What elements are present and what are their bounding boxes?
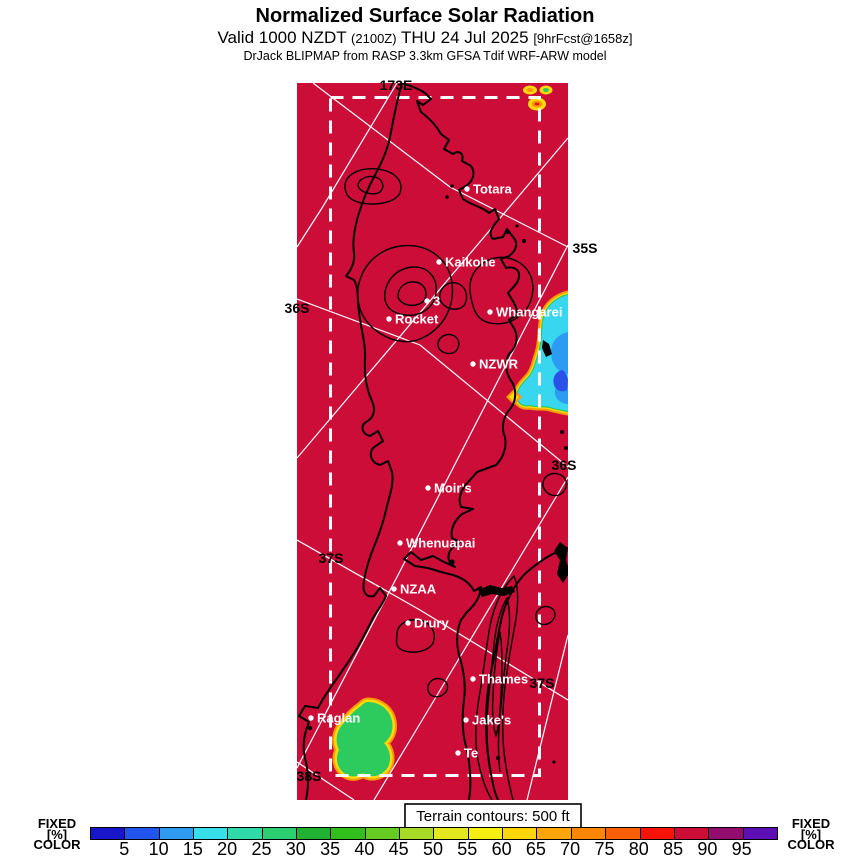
colorbar-tick-85: 85 [663,839,683,860]
colorbar-tick-25: 25 [251,839,271,860]
colorbar-tick-15: 15 [183,839,203,860]
colorbar-segment-19 [744,828,777,839]
station-label: Whenuapai [406,536,475,551]
colorbar-fixed-label-left: FIXED [%] COLOR [27,819,87,851]
colorbar-segment-1 [125,828,159,839]
colorbar-segment-10 [434,828,468,839]
colorbar-segment-0 [91,828,125,839]
colorbar-segment-7 [331,828,365,839]
solar-radiation-map: 173E35S36S36S37S37S38S TotaraKaikohe3Roc… [0,0,850,860]
graticule-label-36s: 36S [285,300,310,316]
graticule-label-38s: 38S [297,768,322,784]
colorbar-segment-8 [366,828,400,839]
station-label: Totara [473,182,513,197]
station-dot [470,676,475,681]
station-label: Te [464,746,478,761]
station-label: Raglan [317,711,360,726]
colorbar-tick-65: 65 [526,839,546,860]
colorbar-segment-6 [297,828,331,839]
station-dot [455,750,460,755]
colorbar-segment-13 [537,828,571,839]
station-label: Rocket [395,312,439,327]
colorbar-segment-16 [641,828,675,839]
station-label: 3 [433,294,440,309]
station-dot [464,186,469,191]
terrain-note: Terrain contours: 500 ft [405,804,581,828]
station-dot [405,620,410,625]
station-label: Kaikohe [445,255,496,270]
map-background [297,83,568,800]
colorbar-tick-75: 75 [594,839,614,860]
colorbar-segment-15 [606,828,640,839]
colorbar-tick-45: 45 [389,839,409,860]
colorbar-tick-30: 30 [286,839,306,860]
station-label: Moir's [434,481,472,496]
colorbar-segment-14 [572,828,606,839]
graticule-label-36s: 36S [552,457,577,473]
station-dot [391,586,396,591]
graticule-label-37s: 37S [530,675,555,691]
colorbar-tick-95: 95 [732,839,752,860]
colorbar-segment-2 [160,828,194,839]
colorbar-tick-90: 90 [697,839,717,860]
colorbar-tick-70: 70 [560,839,580,860]
colorbar-segment-3 [194,828,228,839]
colorbar-segment-17 [675,828,709,839]
station-dot [463,717,468,722]
colorbar-fixed-label-right: FIXED [%] COLOR [781,819,841,851]
station-label: Thames [479,672,528,687]
station-label: NZWR [479,357,519,372]
station-dot [397,540,402,545]
blipmap-page: Normalized Surface Solar Radiation Valid… [0,0,850,860]
graticule-label-35s: 35S [573,240,598,256]
colorbar-ticks: 5101520253035404550556065707580859095 [90,839,778,860]
colorbar-tick-10: 10 [149,839,169,860]
station-dot [487,309,492,314]
colorbar-tick-50: 50 [423,839,443,860]
station-label: Drury [414,616,449,631]
station-dot [386,316,391,321]
station-dot [424,298,429,303]
spot-b-core [543,88,549,92]
colorbar-tick-35: 35 [320,839,340,860]
graticule-label-173e: 173E [380,77,413,93]
colorbar-segment-9 [400,828,434,839]
colorbar-segment-4 [228,828,262,839]
station-dot [470,361,475,366]
spot-a-core [527,88,534,92]
colorbar-tick-20: 20 [217,839,237,860]
colorbar-segment-5 [263,828,297,839]
terrain-note-text: Terrain contours: 500 ft [416,808,570,825]
station-label: NZAA [400,582,437,597]
station-dot [436,259,441,264]
colorbar-segment-12 [503,828,537,839]
colorbar-segment-11 [469,828,503,839]
colorbar-tick-80: 80 [629,839,649,860]
colorbar-tick-5: 5 [119,839,129,860]
fixed-label-line3: COLOR [781,840,841,851]
colorbar-tick-55: 55 [457,839,477,860]
fixed-label-line3: COLOR [27,840,87,851]
spot-c-core [535,103,540,106]
colorbar-tick-40: 40 [354,839,374,860]
station-label: Whangarei [496,305,562,320]
colorbar-tick-60: 60 [492,839,512,860]
station-dot [308,715,313,720]
station-label: Jake's [472,713,511,728]
graticule-label-37s: 37S [319,550,344,566]
colorbar-segment-18 [709,828,743,839]
station-dot [425,485,430,490]
